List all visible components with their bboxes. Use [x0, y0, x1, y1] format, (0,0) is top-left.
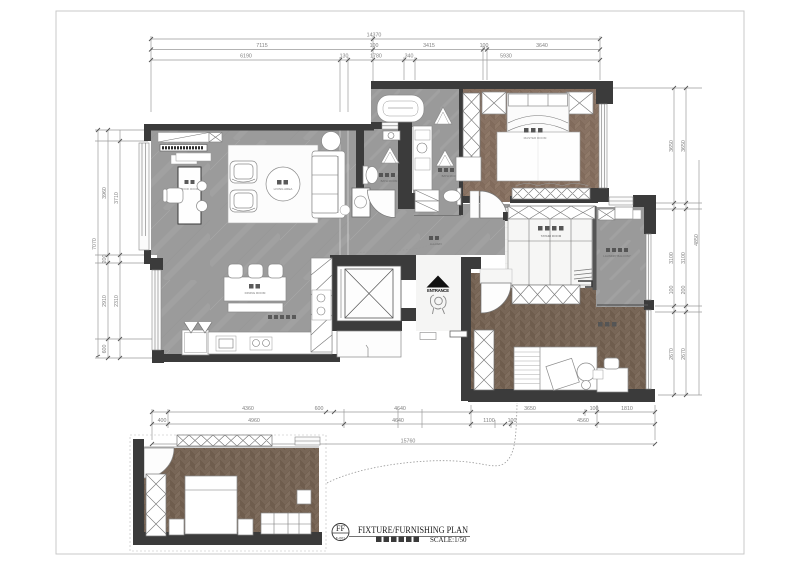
svg-text:1810: 1810 [621, 406, 633, 412]
svg-text:3100: 3100 [681, 252, 687, 264]
svg-text:3640: 3640 [536, 43, 548, 49]
svg-text:3650: 3650 [681, 140, 687, 152]
svg-text:1780: 1780 [370, 54, 382, 60]
svg-text:3650: 3650 [669, 140, 675, 152]
svg-text:4640: 4640 [392, 418, 404, 424]
svg-text:15760: 15760 [401, 439, 416, 445]
svg-text:340: 340 [405, 54, 414, 60]
svg-text:3100: 3100 [669, 252, 675, 264]
svg-text:4640: 4640 [394, 406, 406, 412]
svg-text:LIVING AREA: LIVING AREA [274, 187, 293, 191]
svg-text:4960: 4960 [248, 418, 260, 424]
svg-text:4560: 4560 [577, 418, 589, 424]
svg-text:600: 600 [315, 406, 324, 412]
svg-text:200: 200 [102, 255, 108, 264]
svg-text:LAUNDRY BALCONY: LAUNDRY BALCONY [603, 254, 631, 258]
svg-text:F-001: F-001 [336, 537, 345, 541]
svg-text:2670: 2670 [669, 348, 675, 360]
svg-text:100: 100 [370, 43, 379, 49]
svg-text:7115: 7115 [256, 43, 267, 49]
svg-text:100: 100 [669, 286, 675, 295]
svg-text:100: 100 [590, 406, 599, 412]
svg-text:BOOK ROOM: BOOK ROOM [181, 187, 199, 191]
svg-text:SCALE:1/50: SCALE:1/50 [430, 536, 467, 544]
svg-text:ENTRANCE: ENTRANCE [427, 288, 449, 293]
svg-text:100: 100 [508, 418, 517, 424]
svg-text:FIXTURE/FURNISHING PLAN: FIXTURE/FURNISHING PLAN [358, 526, 468, 536]
svg-text:100: 100 [480, 43, 489, 49]
svg-text:4360: 4360 [242, 406, 254, 412]
svg-text:1100: 1100 [483, 418, 494, 424]
svg-text:130: 130 [340, 54, 349, 60]
svg-text:2310: 2310 [114, 295, 120, 307]
svg-text:2670: 2670 [681, 348, 687, 360]
svg-text:600: 600 [102, 345, 108, 354]
svg-text:6190: 6190 [240, 54, 252, 60]
svg-text:14370: 14370 [367, 33, 382, 39]
svg-text:DINING ROOM: DINING ROOM [245, 291, 266, 295]
svg-text:TATAMI ROOM: TATAMI ROOM [541, 234, 562, 238]
svg-text:5930: 5930 [500, 54, 512, 60]
svg-text:7070: 7070 [92, 238, 98, 250]
svg-text:BATH ROOM: BATH ROOM [381, 179, 398, 183]
svg-text:400: 400 [158, 418, 167, 424]
svg-text:FF: FF [336, 524, 345, 533]
svg-text:MASTER ROOM: MASTER ROOM [524, 136, 547, 140]
svg-text:2910: 2910 [102, 295, 108, 307]
svg-text:3650: 3650 [524, 406, 536, 412]
svg-text:200: 200 [681, 286, 687, 295]
svg-text:3415: 3415 [423, 43, 435, 49]
svg-text:4850: 4850 [694, 234, 700, 246]
svg-text:3710: 3710 [114, 192, 120, 204]
svg-text:3960: 3960 [102, 187, 108, 199]
